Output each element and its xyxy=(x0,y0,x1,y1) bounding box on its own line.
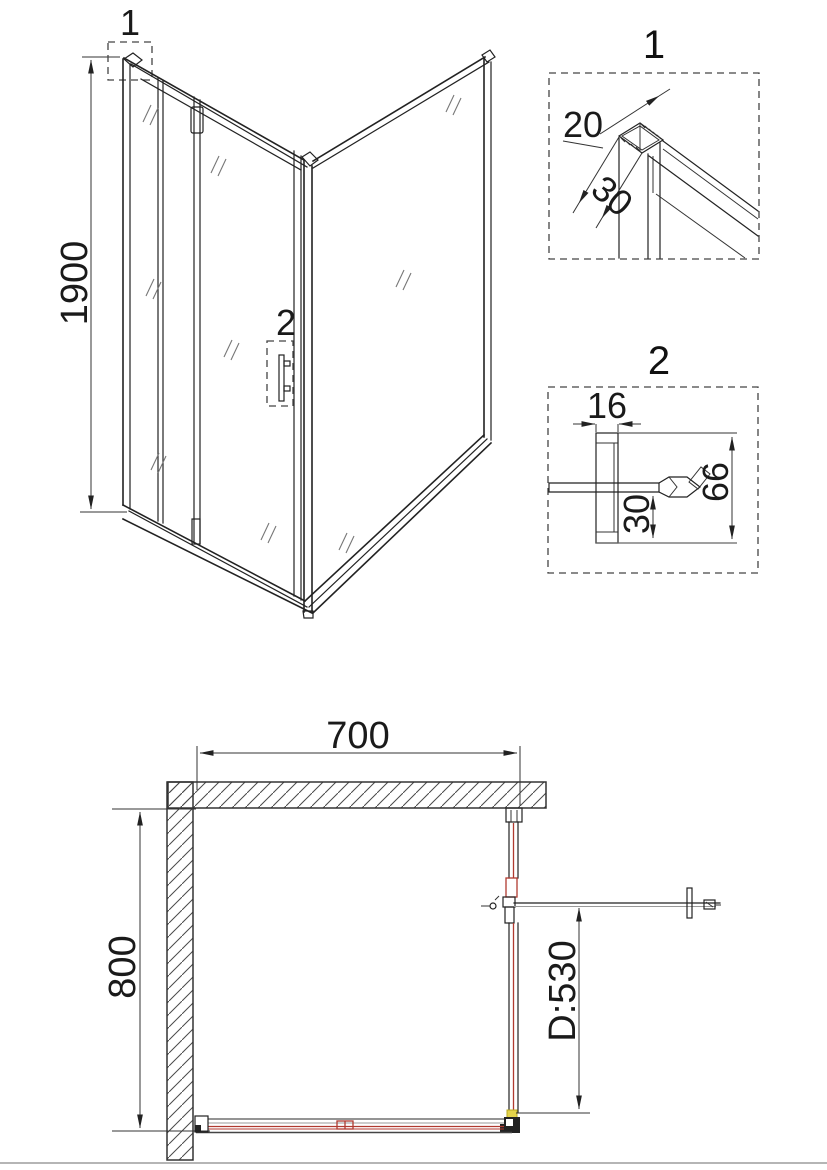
door-width-dimension-label: D:530 xyxy=(542,940,584,1041)
detail-2-dim-66: 66 xyxy=(695,437,736,539)
left-wall xyxy=(167,782,193,1160)
detail-1-dim-30: 30 xyxy=(573,137,642,228)
corner-post xyxy=(302,152,318,618)
height-dimension-label: 1900 xyxy=(54,241,96,326)
detail-1-title: 1 xyxy=(643,23,665,67)
top-wall xyxy=(168,782,546,808)
door-width-dimension: D:530 xyxy=(516,908,590,1113)
detail-1-dim-20-label: 20 xyxy=(563,104,603,145)
door-pivot xyxy=(481,896,515,923)
shower-enclosure-drawing: 1900 1 xyxy=(0,0,827,1170)
detail-2-dim-16-label: 16 xyxy=(587,385,627,426)
bottom-panel-plan xyxy=(195,1116,512,1133)
wall-bracket-top xyxy=(506,808,522,822)
detail-1-view: 1 20 xyxy=(549,23,759,259)
width-dimension-label: 700 xyxy=(326,715,389,757)
detail-1-dim-30-label: 30 xyxy=(584,167,641,224)
hinge-bottom-tab xyxy=(192,519,200,544)
door-hinge-profile xyxy=(191,97,203,544)
wall-profile-section xyxy=(596,433,618,543)
callout-2-box xyxy=(267,341,293,406)
wall-bracket-left-block xyxy=(195,1125,201,1132)
detail-2-title: 2 xyxy=(648,339,670,383)
detail-2-dim-30: 30 xyxy=(616,494,657,538)
open-door-plan xyxy=(514,888,721,918)
technical-drawing-page: 1900 1 xyxy=(0,0,827,1170)
corner-foot-notch xyxy=(506,1119,513,1126)
callout-1-label: 1 xyxy=(120,2,140,43)
front-3d-view: 1900 1 xyxy=(54,2,495,618)
detail-1-dim-20: 20 xyxy=(563,89,670,148)
hinge-highlight xyxy=(506,878,517,897)
depth-dimension-label: 800 xyxy=(102,935,144,998)
detail-1-border xyxy=(549,73,759,259)
detail-2-dim-30-label: 30 xyxy=(616,494,657,534)
door-handle xyxy=(279,355,290,401)
detail-2-dim-16: 16 xyxy=(573,385,641,432)
plan-view: 700 800 xyxy=(102,715,721,1160)
detail-2-dim-66-label: 66 xyxy=(695,462,736,502)
height-dimension: 1900 xyxy=(54,57,127,512)
detail-2-view: 2 16 30 66 xyxy=(548,339,758,573)
callout-2-label: 2 xyxy=(276,302,296,343)
corner-profile-section xyxy=(619,123,663,153)
glass-and-seal xyxy=(549,467,710,497)
depth-dimension: 800 xyxy=(102,809,210,1131)
side-panel-plan xyxy=(481,808,522,1133)
